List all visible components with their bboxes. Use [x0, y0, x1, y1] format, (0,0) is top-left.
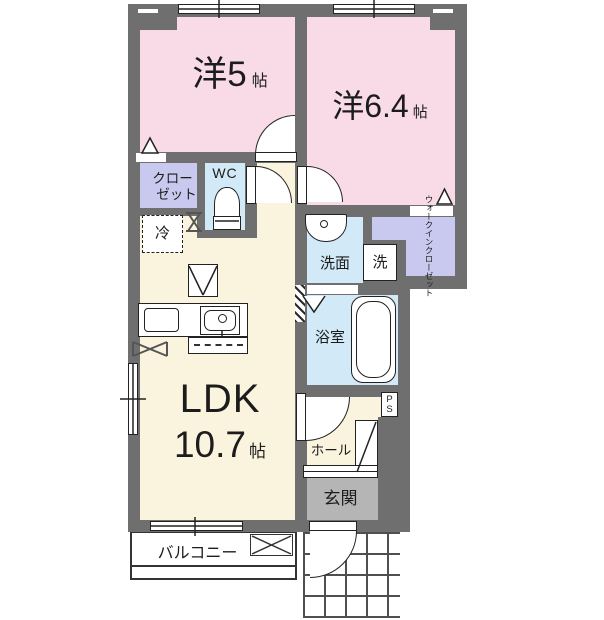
ldk-size-label: 10.7帖	[140, 424, 300, 468]
bedroom64-door-leaf	[297, 166, 307, 204]
washbasin-faucet-icon	[320, 220, 328, 228]
entrance-step-strip-lower	[303, 471, 378, 478]
balcony-label: バルコニー	[140, 542, 255, 566]
pillar-top-left	[140, 17, 177, 30]
kitchen-faucet-icon	[218, 314, 227, 323]
wall-right-upper	[455, 4, 467, 289]
ldk-floor	[140, 216, 295, 520]
entrance-door-leaf	[309, 521, 357, 531]
kitchen-stove-icon	[144, 308, 179, 332]
window-ldk-left	[128, 363, 138, 435]
bedroom-6-4-label: 洋6.4帖	[310, 88, 450, 130]
toilet-tank-icon	[213, 216, 241, 230]
bathtub-inner-icon	[356, 301, 391, 378]
window-bedroom5	[178, 4, 260, 14]
bath-door-opening	[307, 285, 358, 294]
floor-plan: 洋5帖 洋6.4帖 LDK 10.7帖 クロー ゼット WC 冷 洗面 洗 浴室…	[0, 0, 604, 620]
window-balcony-slider	[150, 521, 243, 531]
ldk-label: LDK	[150, 378, 290, 420]
closet-label: クロー ゼット	[140, 166, 205, 208]
pillar-top-right	[430, 17, 455, 30]
wc-door-leaf	[246, 166, 256, 204]
kitchen-counter-dashed-line	[194, 344, 243, 346]
wall-dash-left	[138, 9, 158, 13]
wall-wic-left	[363, 217, 372, 242]
wc-label: WC	[205, 163, 245, 183]
balcony-equipment-box	[250, 534, 293, 556]
window-bedroom64	[333, 4, 415, 14]
washer-label: 洗	[363, 244, 397, 281]
bedroom-5-label: 洋5帖	[160, 55, 300, 101]
wall-genkan-right	[378, 417, 410, 532]
entrance-label: 玄関	[303, 484, 378, 514]
hall-label: ホール	[300, 440, 362, 462]
closet-doorway-opening	[136, 153, 166, 162]
bedroom5-door-leaf	[255, 152, 297, 162]
inspection-hatch-box	[188, 264, 218, 297]
wall-hatch-pillar	[295, 285, 305, 322]
ps-label: P S	[381, 393, 398, 417]
walk-in-closet-label: ウォークイン クローゼット	[406, 217, 450, 275]
wall-dash-right	[433, 9, 453, 13]
washroom-label: 洗面	[307, 252, 363, 276]
bathroom-label: 浴室	[305, 326, 355, 350]
refrigerator-label: 冷	[142, 215, 183, 253]
wall-left	[128, 4, 140, 532]
